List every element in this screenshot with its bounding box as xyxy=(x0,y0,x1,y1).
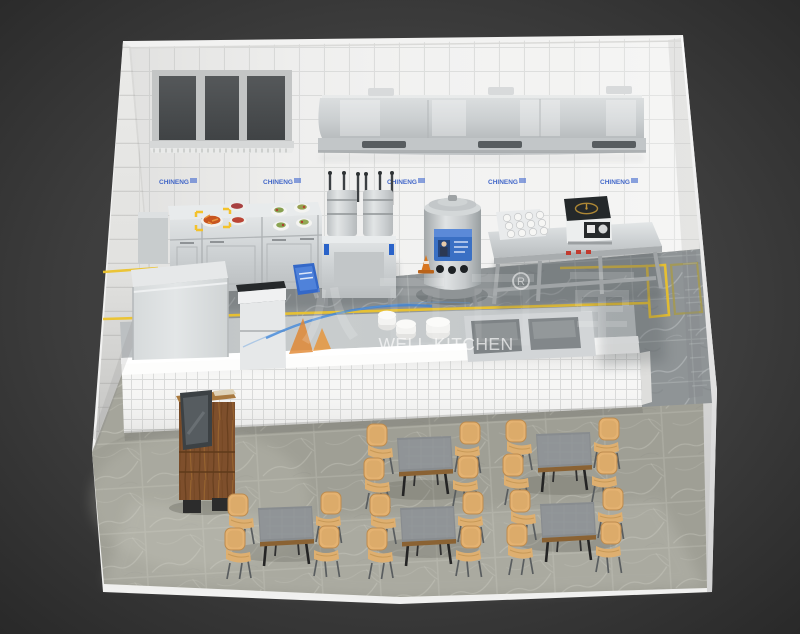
svg-text:WELL-KITCHEN: WELL-KITCHEN xyxy=(378,334,513,354)
svg-text:R: R xyxy=(517,276,525,288)
svg-text:CHINENG: CHINENG xyxy=(600,179,630,186)
svg-text:CHINENG: CHINENG xyxy=(263,179,293,186)
svg-text:CHINENG: CHINENG xyxy=(159,179,189,186)
svg-text:CHINENG: CHINENG xyxy=(488,179,518,186)
